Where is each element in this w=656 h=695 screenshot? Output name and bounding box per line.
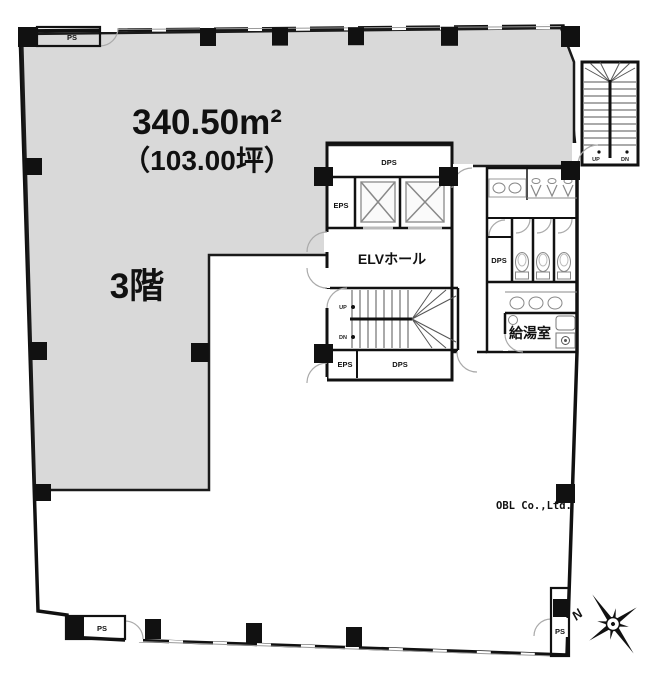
ps-label: PS — [97, 624, 107, 633]
column — [346, 627, 362, 647]
compass-rose: N — [569, 578, 656, 670]
column — [191, 343, 209, 362]
window-band-bottom — [125, 641, 553, 656]
door-arc — [457, 352, 477, 372]
door-arc — [534, 619, 551, 636]
floor-label: 3階 — [110, 267, 164, 306]
stair-winders — [585, 62, 635, 82]
stair-dn-label: DN — [339, 335, 347, 341]
dps-label: DPS — [392, 360, 407, 369]
floor-drain — [509, 316, 518, 325]
stair-up-label: UP — [339, 305, 347, 311]
urinals — [531, 179, 573, 197]
column — [30, 342, 47, 360]
area-tsubo-label: （103.00坪） — [122, 144, 292, 176]
stair-dn-label: DN — [621, 157, 629, 163]
door-arc — [516, 219, 530, 233]
column — [439, 167, 458, 186]
ps-label: PS — [555, 627, 565, 636]
stair-dot — [597, 150, 600, 153]
column — [272, 28, 288, 46]
elevator-shaft — [406, 182, 444, 228]
stair-dot — [351, 335, 355, 339]
toilets — [516, 253, 571, 280]
dps-label: DPS — [491, 256, 506, 265]
column — [145, 619, 161, 639]
watermark: OBL Co.,Ltd. — [496, 500, 572, 512]
floor-plan: UP DN — [0, 0, 656, 695]
stairwell-central: UP DN — [339, 290, 456, 348]
stairwell-northeast: UP DN — [582, 62, 638, 165]
column — [314, 344, 333, 363]
eps-label: EPS — [337, 360, 352, 369]
column — [553, 599, 569, 617]
door-arc — [558, 219, 572, 233]
stair-dot — [625, 150, 628, 153]
elevator-shaft — [361, 182, 395, 228]
kitchenette-label: 給湯室 — [509, 325, 551, 341]
sink-counter — [505, 292, 577, 309]
column — [561, 26, 580, 47]
dps-label: DPS — [381, 158, 396, 167]
column — [348, 27, 364, 45]
column — [246, 623, 262, 643]
stair-up-label: UP — [592, 157, 600, 163]
elv-hall-label: ELVホール — [358, 251, 426, 267]
column — [441, 27, 458, 46]
column — [25, 158, 42, 175]
area-m2-label: 340.50m² — [132, 103, 282, 142]
column — [34, 484, 51, 501]
column — [561, 161, 580, 180]
eps-label: EPS — [333, 201, 348, 210]
kitchen-sink — [556, 316, 575, 330]
sink-counter — [489, 179, 526, 197]
column — [314, 167, 333, 186]
column — [66, 616, 84, 639]
column — [200, 28, 216, 46]
stair-dot — [351, 305, 355, 309]
stair-winders — [412, 290, 456, 348]
door-arc — [537, 219, 551, 233]
floor-plan-canvas: UP DN — [0, 0, 656, 695]
compass-north-label: N — [569, 605, 586, 623]
ps-label: PS — [67, 33, 77, 42]
door-arc — [489, 220, 505, 236]
column — [18, 27, 38, 47]
